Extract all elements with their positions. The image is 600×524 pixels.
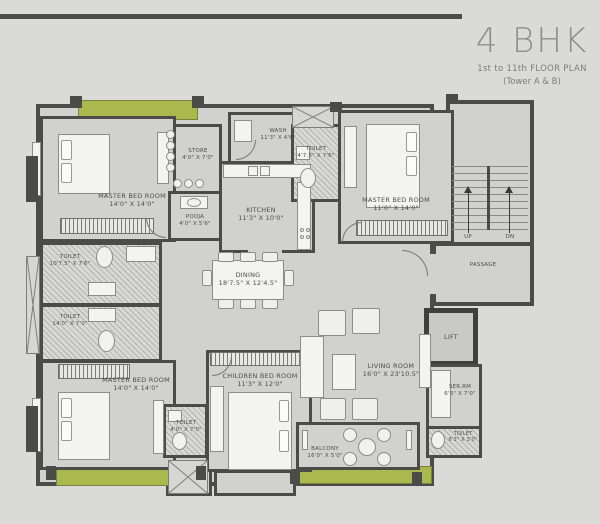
duct-circle — [184, 179, 193, 188]
top-divider-bar — [0, 14, 462, 19]
balcony-chair — [377, 428, 391, 442]
plan-subtitle: 1st to 11th FLOOR PLAN — [468, 64, 596, 74]
chair — [262, 252, 278, 262]
label-store: STORE 4'0" X 7'0" — [177, 148, 219, 162]
column — [70, 96, 82, 108]
label-toilet-left-lower: TOILET 14'0" X 7'0" — [46, 314, 94, 328]
wardrobe — [356, 220, 448, 236]
label-toilet-left-upper: TOILET 10'7.5" X 7'6" — [48, 254, 92, 268]
kitchen-counter-right — [297, 182, 311, 250]
kitchen-sink — [248, 166, 258, 176]
armchair — [352, 308, 380, 334]
armchair — [352, 398, 378, 420]
label-master-bedroom-top-left: MASTER BED ROOM 14'0" X 14'0" — [92, 192, 172, 209]
hob-burner — [306, 228, 310, 232]
room-name: PASSAGE — [452, 262, 514, 269]
room-name: CHILDREN BED ROOM — [218, 372, 302, 380]
label-toilet-bottom-right: TOILET 6'3" X 3'0" — [446, 431, 480, 444]
label-master-bedroom-top-right: MASTER BED ROOM 11'0" X 14'0" — [356, 196, 436, 213]
title-block: 4 BHK 1st to 11th FLOOR PLAN (Tower A & … — [468, 24, 596, 87]
room-name: TOILET — [166, 420, 206, 427]
chair — [202, 270, 212, 286]
stairs-up-arrowhead-icon — [464, 186, 472, 193]
pooja-idol — [187, 198, 201, 207]
duct-cross-box-left — [26, 256, 40, 354]
plan-tower-label: (Tower A & B) — [468, 77, 596, 87]
duct-cross-box-top — [292, 106, 334, 128]
passage-opening — [428, 254, 440, 294]
room-dims: 16'0" X 5'0" — [302, 453, 348, 460]
stairs-treads — [452, 166, 528, 230]
column — [26, 406, 38, 452]
hob-burner — [306, 235, 310, 239]
label-passage: PASSAGE — [452, 262, 514, 269]
room-dims: 14'0" X 14'0" — [92, 200, 172, 208]
floor-plan-canvas: 4 BHK 1st to 11th FLOOR PLAN (Tower A & … — [0, 0, 600, 524]
label-wash: WASH 11'3" X 4'6" — [248, 128, 308, 142]
hob-burner — [300, 228, 304, 232]
pillow — [61, 140, 72, 160]
column — [446, 94, 458, 104]
stairs-dn-arrow — [509, 193, 510, 233]
room-name: MASTER BED ROOM — [96, 376, 176, 384]
chair — [262, 299, 278, 309]
sofa — [300, 336, 324, 398]
label-master-bedroom-bottom-left: MASTER BED ROOM 14'0" X 14'0" — [96, 376, 176, 393]
pillow — [406, 132, 417, 152]
stairs-divider — [487, 166, 490, 230]
pillow — [61, 398, 72, 418]
plan-title: 4 BHK — [468, 24, 596, 58]
room-name: MASTER BED ROOM — [356, 196, 436, 204]
label-servant-room: SER.RM 6'3" X 7'0" — [442, 384, 478, 398]
duct-circle — [166, 130, 175, 139]
room-name: TOILET — [48, 254, 92, 261]
room-name: MASTER BED ROOM — [92, 192, 172, 200]
room-dims: 11'0" X 14'0" — [356, 204, 436, 212]
room-dims: 14'0" X 7'0" — [46, 321, 94, 328]
cabinet — [210, 386, 224, 452]
label-pooja: POOJA 4'0" X 5'6" — [172, 214, 218, 228]
room-name: SER.RM — [442, 384, 478, 391]
room-dims: 11'3" X 10'0" — [226, 214, 296, 222]
label-dining: DINING 18'7.5" X 12'4.5" — [214, 271, 282, 288]
duct-circle — [166, 163, 175, 172]
room-name: DINING — [214, 271, 282, 279]
column — [26, 156, 38, 202]
column — [196, 466, 206, 480]
lift-label: LIFT — [444, 333, 458, 341]
stairs-dn-label: DN — [500, 234, 520, 241]
wc — [96, 246, 113, 268]
column — [412, 472, 422, 484]
wc — [431, 431, 445, 449]
column — [192, 96, 204, 108]
coffee-table — [332, 354, 356, 390]
chair — [218, 299, 234, 309]
room-name: BALCONY — [302, 446, 348, 453]
room-dims: 14'0" X 14'0" — [96, 384, 176, 392]
room-dims: 16'0" X 23'10.5" — [354, 370, 428, 378]
room-name: KITCHEN — [226, 206, 296, 214]
room-name: WASH — [248, 128, 308, 135]
label-living-room: LIVING ROOM 16'0" X 23'10.5" — [354, 362, 428, 379]
room-dims: 18'7.5" X 12'4.5" — [214, 279, 282, 287]
chair — [240, 299, 256, 309]
room-dims: 4'0" X 7'0" — [166, 427, 206, 434]
dresser — [153, 400, 164, 454]
balcony-chair — [377, 452, 391, 466]
label-toilet-bottom: TOILET 4'0" X 7'0" — [166, 420, 206, 434]
stairs-up-arrow — [468, 193, 469, 233]
armchair — [318, 310, 346, 336]
stairs-up-label: UP — [458, 234, 478, 241]
toilet-vanity — [88, 282, 116, 296]
passage-block — [432, 242, 534, 306]
shower-tray — [126, 246, 156, 262]
chair — [240, 252, 256, 262]
balcony-chair — [343, 428, 357, 442]
column — [290, 472, 300, 484]
cabinet — [344, 126, 357, 188]
room-dims: 4'0" X 7'0" — [177, 155, 219, 162]
hob-burner — [300, 235, 304, 239]
room-name: POOJA — [172, 214, 218, 221]
duct-circle — [166, 152, 175, 161]
balcony-table — [358, 438, 376, 456]
room-name: TOILET — [294, 146, 338, 153]
room-dims: 4'7.5" X 7'6" — [294, 153, 338, 160]
label-children-bedroom: CHILDREN BED ROOM 11'3" X 12'0" — [218, 372, 302, 389]
duct-circle — [173, 179, 182, 188]
pillow — [61, 163, 72, 183]
room-dims: 11'3" X 12'0" — [218, 380, 302, 388]
pillow — [406, 156, 417, 176]
wardrobe — [60, 218, 154, 234]
room-dims: 10'7.5" X 7'6" — [48, 261, 92, 268]
label-balcony: BALCONY 16'0" X 5'0" — [302, 446, 348, 460]
room-dims: 4'0" X 5'6" — [172, 221, 218, 228]
pillow — [279, 430, 289, 452]
column — [46, 466, 56, 480]
wc — [300, 168, 316, 188]
room-name: TOILET — [46, 314, 94, 321]
bottom-ledge — [214, 470, 296, 496]
label-toilet-top: TOILET 4'7.5" X 7'6" — [294, 146, 338, 160]
stairs-dn-arrowhead-icon — [505, 186, 513, 193]
wc — [98, 330, 115, 352]
room-dims: 11'3" X 4'6" — [248, 135, 308, 142]
column — [330, 102, 342, 112]
chair — [218, 252, 234, 262]
duct-circle — [166, 141, 175, 150]
planter — [406, 430, 412, 450]
armchair — [320, 398, 346, 420]
duct-circle — [195, 179, 204, 188]
room-lift: LIFT — [424, 308, 478, 366]
pillow — [279, 400, 289, 422]
room-dims: 6'3" X 3'0" — [446, 437, 480, 443]
kitchen-sink — [260, 166, 270, 176]
room-dims: 6'3" X 7'0" — [442, 391, 478, 398]
wc — [172, 432, 187, 450]
pillow — [61, 421, 72, 441]
label-kitchen: KITCHEN 11'3" X 10'0" — [226, 206, 296, 223]
chair — [284, 270, 294, 286]
room-name: LIVING ROOM — [354, 362, 428, 370]
room-name: STORE — [177, 148, 219, 155]
tv-unit — [419, 334, 431, 388]
